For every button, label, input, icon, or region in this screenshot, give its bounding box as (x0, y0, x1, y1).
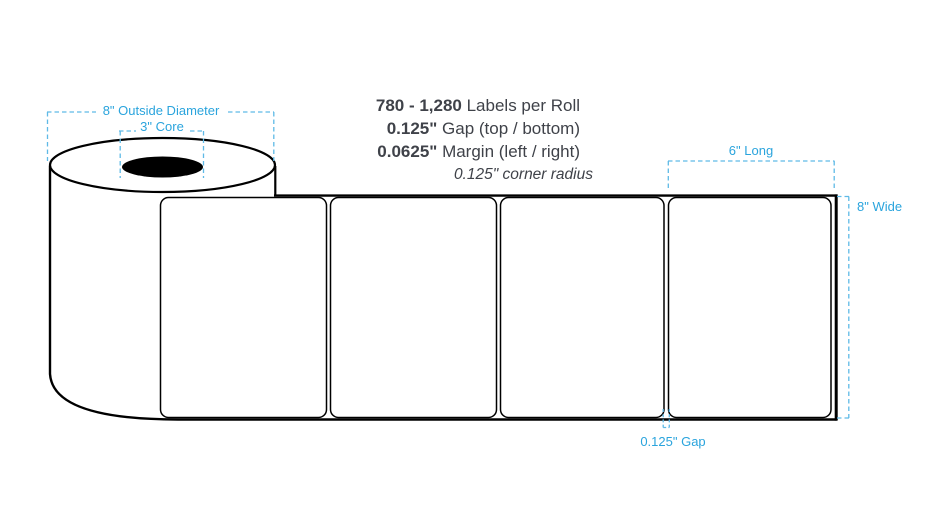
label-3 (501, 198, 665, 418)
gap-value: 0.125" (387, 119, 438, 138)
core-annotation: 3" Core (62, 119, 262, 135)
diagram-canvas (0, 0, 942, 508)
label-roll-spec-diagram: 780 - 1,280 Labels per Roll 0.125" Gap (… (0, 0, 942, 508)
outside-diameter-annotation: 8" Outside Diameter (51, 103, 271, 119)
length-dashes (668, 161, 835, 191)
margin-text: Margin (left / right) (437, 142, 580, 161)
label-length-annotation: 6" Long (651, 143, 851, 159)
label-4 (669, 198, 832, 418)
roll-width-annotation: 8" Wide (857, 199, 902, 215)
roll-core-hole (122, 157, 203, 178)
spec-line-labels-per-roll: 780 - 1,280 Labels per Roll (376, 94, 580, 117)
spec-block: 780 - 1,280 Labels per Roll 0.125" Gap (… (376, 94, 580, 186)
width-dashes (837, 197, 852, 419)
label-2 (331, 198, 497, 418)
label-gap-annotation: 0.125" Gap (573, 434, 773, 450)
margin-value: 0.0625" (377, 142, 437, 161)
labels-per-roll-text: Labels per Roll (462, 96, 580, 115)
labels-per-roll-value: 780 - 1,280 (376, 96, 462, 115)
labels-row (161, 198, 832, 418)
spec-line-margin: 0.0625" Margin (left / right) (376, 140, 580, 163)
spec-line-gap: 0.125" Gap (top / bottom) (376, 117, 580, 140)
corner-radius-note: 0.125" corner radius (376, 163, 593, 186)
gap-text: Gap (top / bottom) (437, 119, 580, 138)
label-1 (161, 198, 327, 418)
